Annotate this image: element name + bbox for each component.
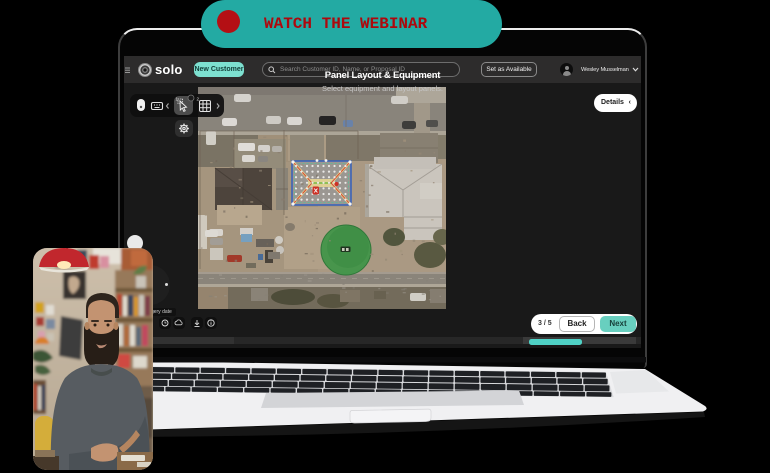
svg-text:2: 2 [197, 97, 200, 102]
